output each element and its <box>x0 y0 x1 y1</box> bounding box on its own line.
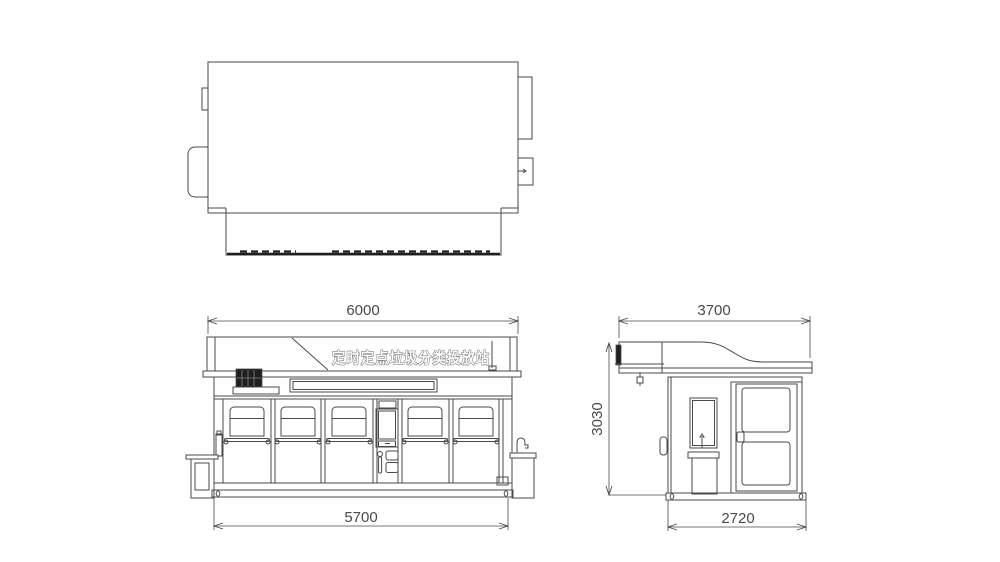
side-door-handle[interactable] <box>737 432 744 442</box>
sink-cabinet <box>512 458 534 498</box>
side-base <box>666 493 806 500</box>
sink-faucet[interactable] <box>517 438 528 453</box>
collection-window[interactable] <box>275 407 321 444</box>
side-sink-counter <box>688 452 719 458</box>
side-tie-down-right <box>799 494 803 499</box>
cad-drawing: 6000 定时定点垃圾分类投放站 <box>0 0 1000 562</box>
side-tie-down-left <box>670 494 674 499</box>
banner-text: 定时定点垃圾分类投放站 <box>332 349 490 367</box>
side-wall-handle[interactable] <box>660 437 667 455</box>
door-access-panel-lower[interactable] <box>386 463 398 473</box>
collection-window[interactable] <box>453 407 499 444</box>
front-top-rail <box>214 396 512 399</box>
ac-shelf <box>233 387 279 394</box>
front-wall <box>214 369 512 490</box>
front-wash-sink <box>510 438 536 498</box>
side-door[interactable] <box>731 382 802 493</box>
front-left-fixture <box>216 431 222 456</box>
tie-down-right <box>504 491 508 496</box>
plan-left-bump <box>188 147 208 197</box>
front-base-dimension: 5700 <box>214 498 508 530</box>
front-center-door[interactable] <box>376 401 398 473</box>
door-handle[interactable] <box>378 452 383 474</box>
front-roof-dimension: 6000 <box>208 302 518 334</box>
front-left-step <box>186 455 218 498</box>
side-base-dimension-label: 2720 <box>721 510 754 527</box>
plan-right-protrusion <box>518 77 532 139</box>
collection-windows <box>224 407 499 444</box>
top-plan-view <box>188 62 533 255</box>
door-access-panel-upper[interactable] <box>386 451 398 460</box>
collection-window[interactable] <box>402 407 448 444</box>
side-door-panel-lower <box>742 442 790 485</box>
collection-window[interactable] <box>224 407 270 444</box>
side-door-leaf <box>736 384 797 491</box>
plan-left-tab <box>202 88 208 110</box>
side-sink-cabinet <box>692 458 717 494</box>
tie-down-left <box>216 491 220 496</box>
door-window-glass <box>379 411 396 439</box>
side-door-glass-upper <box>742 388 790 432</box>
sink-counter <box>510 453 536 458</box>
side-elevation: 3700 3030 <box>589 302 812 531</box>
front-elevation: 6000 定时定点垃圾分类投放站 <box>186 302 536 530</box>
side-roof <box>615 342 812 386</box>
canopy-end-cap <box>616 345 621 365</box>
plan-main-body <box>208 62 518 213</box>
front-roof-dimension-label: 6000 <box>346 302 379 319</box>
side-height-dimension-label: 3030 <box>589 402 606 435</box>
front-base-dimension-label: 5700 <box>344 509 377 526</box>
door-transom <box>379 401 396 408</box>
sign-board <box>290 379 437 392</box>
plan-canopy-overhang <box>226 213 501 255</box>
side-roof-dimension-label: 3700 <box>697 302 730 319</box>
drawing-canvas: 6000 定时定点垃圾分类投放站 <box>0 0 1000 562</box>
canopy-hanging-faucet <box>637 373 643 386</box>
side-base-dimension: 2720 <box>668 500 806 531</box>
front-base <box>212 490 513 497</box>
collection-window[interactable] <box>326 407 372 444</box>
side-window <box>690 398 717 448</box>
